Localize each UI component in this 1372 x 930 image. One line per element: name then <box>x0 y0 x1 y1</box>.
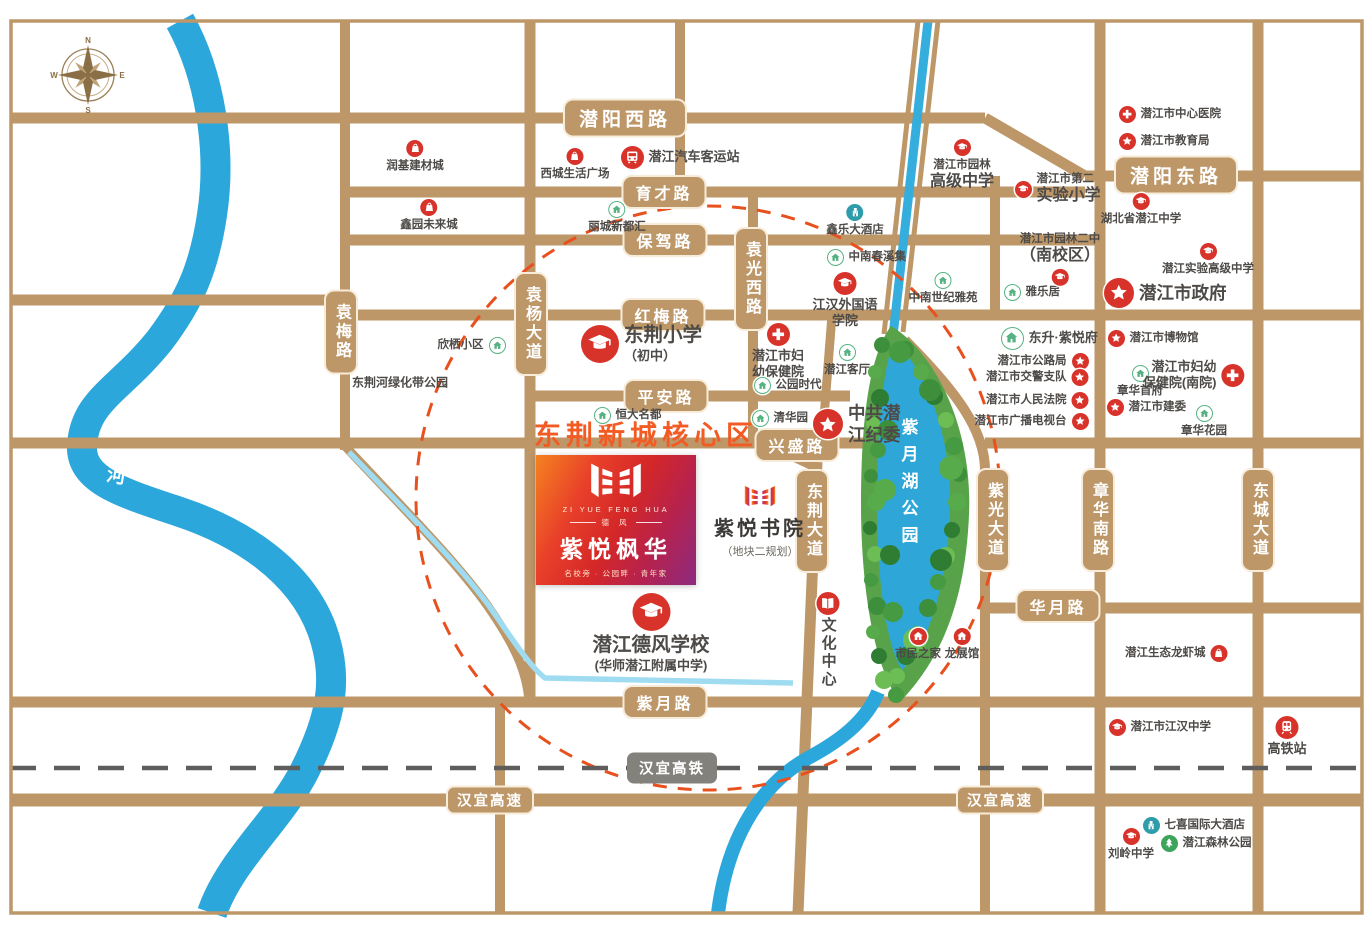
map-poi: 潜江市广播电视台 <box>975 413 1089 430</box>
poi-label: 保健院(南院) <box>1143 375 1217 392</box>
gov-icon <box>813 409 843 439</box>
poi-label: 实验小学 <box>1037 186 1101 206</box>
poi-label: 潜江市教育局 <box>1141 134 1210 149</box>
poi-label: （南校区） <box>1020 246 1100 266</box>
poi-label: 潜江市广播电视台 <box>975 414 1067 429</box>
map-poi: 潜江德风学校(华师潜江附属中学) <box>592 593 709 675</box>
homeG-icon <box>1004 284 1021 301</box>
gov-icon <box>1119 133 1136 150</box>
poi-label: 湖北省潜江中学 <box>1101 212 1182 227</box>
map-poi: 中南世纪雅苑 <box>909 272 978 306</box>
poi-label: 鑫乐大酒店 <box>826 223 884 238</box>
poi-label: 高铁站 <box>1267 741 1306 758</box>
map-poi: 潜江市园林二中（南校区） <box>1020 231 1101 285</box>
river-name-char: 东 <box>68 344 92 374</box>
homeG-icon <box>489 337 506 354</box>
map-poi: 潜江市人民法院 <box>986 392 1089 409</box>
poi-label: 潜江市政府 <box>1139 282 1227 304</box>
road-label: 潜阳东路 <box>1114 156 1238 195</box>
hosp-icon <box>766 323 789 346</box>
poi-label: 江纪委 <box>848 424 901 446</box>
homeG-icon <box>1001 327 1024 350</box>
map-poi: 润基建材城 <box>386 140 444 174</box>
map-poi: 七喜国际大酒店 <box>1143 817 1246 834</box>
project-logo-en: ZI YUE FENG HUA <box>563 505 670 514</box>
map-poi: 潜江市教育局 <box>1119 133 1210 150</box>
gov-icon <box>1108 330 1125 347</box>
poi-label: 潜江德风学校 <box>592 633 709 658</box>
road-label: 汉宜高铁 <box>627 753 717 784</box>
school-icon <box>1133 193 1150 210</box>
map-poi: 鑫园未来城 <box>400 199 458 233</box>
homeG-icon <box>827 249 844 266</box>
project-logo-cn: 紫悦枫华 <box>560 530 672 564</box>
map-poi: 东荆小学（初中） <box>581 323 702 365</box>
poi-label: (华师潜江附属中学) <box>595 658 708 675</box>
poi-label: 潜江市博物馆 <box>1130 331 1199 346</box>
map-poi: 市民之家 <box>895 628 941 662</box>
school-icon <box>1109 719 1126 736</box>
hosp-icon <box>1119 106 1136 123</box>
road-label: 袁杨大道 <box>514 272 548 376</box>
map-poi: 潜江市博物馆 <box>1108 330 1199 347</box>
lake-park-label: 紫月湖公园 <box>896 418 921 553</box>
homeG-icon <box>1196 405 1213 422</box>
map-poi: 丽城新都汇 <box>588 201 646 235</box>
shop-icon <box>421 199 438 216</box>
poi-label: 潜江市妇幼 <box>1151 359 1216 376</box>
gov-icon <box>1072 413 1089 430</box>
map-poi: 潜江市中心医院 <box>1119 106 1222 123</box>
shop-icon <box>1211 645 1228 662</box>
map-poi: 欣栖小区 <box>438 337 506 354</box>
school-icon <box>1015 181 1032 198</box>
homeG-icon <box>839 344 856 361</box>
map-poi: 潜江客厅 <box>824 344 870 378</box>
project-logo-card: ZI YUE FENG HUA 德 风 紫悦枫华 名校旁 · 公园畔 · 青年家 <box>536 455 696 585</box>
poi-label: 丽城新都汇 <box>588 220 646 235</box>
map-poi: 湖北省潜江中学 <box>1101 193 1182 227</box>
project-logo-tagline: 德 风 <box>570 517 661 528</box>
map-poi: 潜江生态龙虾城 <box>1125 645 1228 662</box>
road-label: 汉宜高速 <box>446 786 534 815</box>
school-icon <box>953 139 970 156</box>
map-poi: 江汉外国语学院 <box>812 272 877 330</box>
map-poi: 潜江市园林高级中学 <box>930 139 994 193</box>
school-icon <box>1123 828 1140 845</box>
poi-label: 中南春溪集 <box>849 250 907 265</box>
label-layer: 东 荆 河 东荆河绿化带公园 东荆新城核心区 紫月湖公园 ZI YUE FENG… <box>0 0 1372 930</box>
poi-label: 潜江汽车客运站 <box>649 149 740 166</box>
homeG-icon <box>935 272 952 289</box>
poi-label: 潜江实验高级中学 <box>1162 262 1254 277</box>
gov-icon <box>1072 353 1089 370</box>
river-greenbelt-park-label: 东荆河绿化带公园 <box>352 374 448 391</box>
poi-label: 东升·紫悦府 <box>1029 330 1098 347</box>
river-name-char: 荆 <box>52 403 71 430</box>
poi-label: 潜江市园林二中 <box>1020 231 1101 246</box>
poi-label: 江汉外国语 <box>812 297 877 314</box>
poi-label: （初中） <box>624 348 676 365</box>
gov-icon <box>1104 278 1134 308</box>
poi-label: 潜江市建委 <box>1129 400 1187 415</box>
academy-logo-icon <box>741 484 779 509</box>
gov-icon <box>1072 369 1089 386</box>
homeG-icon <box>752 410 769 427</box>
project-logo-subtitle: 名校旁 · 公园畔 · 青年家 <box>564 568 667 579</box>
train-icon <box>1275 716 1298 739</box>
poi-label: 润基建材城 <box>386 159 444 174</box>
poi-label: 潜江市园林 <box>933 158 991 173</box>
map-poi: 潜江市建委 <box>1107 399 1187 416</box>
academy-subtitle: （地块二规划） <box>722 543 799 559</box>
poi-label: 鑫园未来城 <box>400 218 458 233</box>
road-label: 袁光西路 <box>734 227 768 331</box>
map-poi: 潜江实验高级中学 <box>1162 243 1254 277</box>
road-label: 汉宜高速 <box>956 786 1044 815</box>
poi-label: 潜江市第二 <box>1037 172 1095 187</box>
homeR-icon <box>954 628 971 645</box>
school-icon <box>581 325 619 363</box>
map-poi: 西城生活广场 <box>541 148 610 182</box>
hosp-icon <box>1222 364 1245 387</box>
school-icon <box>1200 243 1217 260</box>
shop-icon <box>567 148 584 165</box>
road-label: 紫月路 <box>622 685 707 719</box>
map-poi: 中南春溪集 <box>827 249 907 266</box>
poi-label: 中南世纪雅苑 <box>909 291 978 306</box>
map-poi: 潜江市交警支队 <box>986 369 1089 386</box>
map-poi: 潜江汽车客运站 <box>621 146 740 169</box>
road-label: 东城大道 <box>1241 468 1275 572</box>
poi-label: 东荆小学 <box>624 323 702 348</box>
poi-label: 龙展馆 <box>945 647 980 662</box>
map-poi: 雅乐居 <box>1004 284 1061 301</box>
road-label: 潜阳西路 <box>563 99 687 138</box>
road-label: 紫光大道 <box>976 468 1010 572</box>
map-poi: 章华花园 <box>1181 405 1227 439</box>
tree-icon <box>1161 835 1178 852</box>
map-poi: 恒大名都 <box>594 407 662 424</box>
academy-card: 紫悦书院 （地块二规划） <box>714 484 806 559</box>
map-poi: 龙展馆 <box>945 628 980 662</box>
road-label: 章华南路 <box>1081 468 1115 572</box>
poi-label: 潜江森林公园 <box>1183 836 1252 851</box>
poi-label: 潜江市妇 <box>752 348 804 365</box>
homeG-icon <box>609 201 626 218</box>
bus-icon <box>621 146 644 169</box>
map-poi: 潜江市妇幼保健院 <box>752 323 804 381</box>
poi-label: 清华园 <box>774 411 809 426</box>
river-name-char: 河 <box>105 460 128 490</box>
gov-icon <box>1072 392 1089 409</box>
hotel-icon <box>847 204 864 221</box>
map-poi: 潜江市公路局 <box>998 353 1089 370</box>
map-poi: 清华园 <box>752 410 809 427</box>
poi-label: 章华花园 <box>1181 424 1227 439</box>
poi-label: 潜江市公路局 <box>998 354 1067 369</box>
poi-label: 潜江市人民法院 <box>986 393 1067 408</box>
poi-label: 文化中心 <box>818 617 837 689</box>
poi-label: 潜江市中心医院 <box>1141 107 1222 122</box>
map-poi: 刘岭中学 <box>1108 828 1154 862</box>
homeG-icon <box>754 377 771 394</box>
map-poi: 潜江市政府 <box>1104 278 1227 308</box>
poi-label: 雅乐居 <box>1026 285 1061 300</box>
map-poi: 中共潜江纪委 <box>813 402 901 447</box>
poi-label: 欣栖小区 <box>438 338 484 353</box>
poi-label: 西城生活广场 <box>541 167 610 182</box>
map-poi: 公园时代 <box>754 377 822 394</box>
homeR-icon <box>910 628 927 645</box>
poi-label: 中共潜 <box>848 402 901 424</box>
academy-name: 紫悦书院 <box>714 512 806 541</box>
shop-icon <box>407 140 424 157</box>
poi-label: 学院 <box>832 313 858 330</box>
map-poi: 潜江市妇幼保健院(南院) <box>1143 359 1245 392</box>
school-icon <box>632 593 670 631</box>
map-poi: 潜江市第二实验小学 <box>1015 172 1101 207</box>
homeG-icon <box>594 407 611 424</box>
map-poi: 东升·紫悦府 <box>1001 327 1098 350</box>
school-icon <box>1052 269 1069 286</box>
project-logo-icon <box>585 461 647 501</box>
map-poi: 文化中心 <box>817 592 840 689</box>
road-label: 华月路 <box>1015 589 1100 623</box>
project-logo-tag-text: 德 风 <box>601 517 630 528</box>
map-poi: 潜江森林公园 <box>1161 835 1252 852</box>
poi-label: 刘岭中学 <box>1108 847 1154 862</box>
poi-label: 高级中学 <box>930 172 994 192</box>
poi-label: 潜江生态龙虾城 <box>1125 646 1206 661</box>
school-icon <box>833 272 856 295</box>
map-poi: 高铁站 <box>1267 716 1306 758</box>
location-map: N E S W <box>0 0 1372 930</box>
map-poi: 鑫乐大酒店 <box>826 204 884 238</box>
poi-label: 公园时代 <box>776 378 822 393</box>
book-icon <box>817 592 840 615</box>
poi-label: 潜江市江汉中学 <box>1131 720 1212 735</box>
gov-icon <box>1107 399 1124 416</box>
poi-label: 潜江客厅 <box>824 363 870 378</box>
poi-label: 七喜国际大酒店 <box>1165 818 1246 833</box>
poi-label: 恒大名都 <box>616 408 662 423</box>
poi-label: 潜江市交警支队 <box>986 370 1067 385</box>
map-poi: 潜江市江汉中学 <box>1109 719 1212 736</box>
poi-label: 市民之家 <box>895 647 941 662</box>
road-label: 袁梅路 <box>324 290 358 375</box>
